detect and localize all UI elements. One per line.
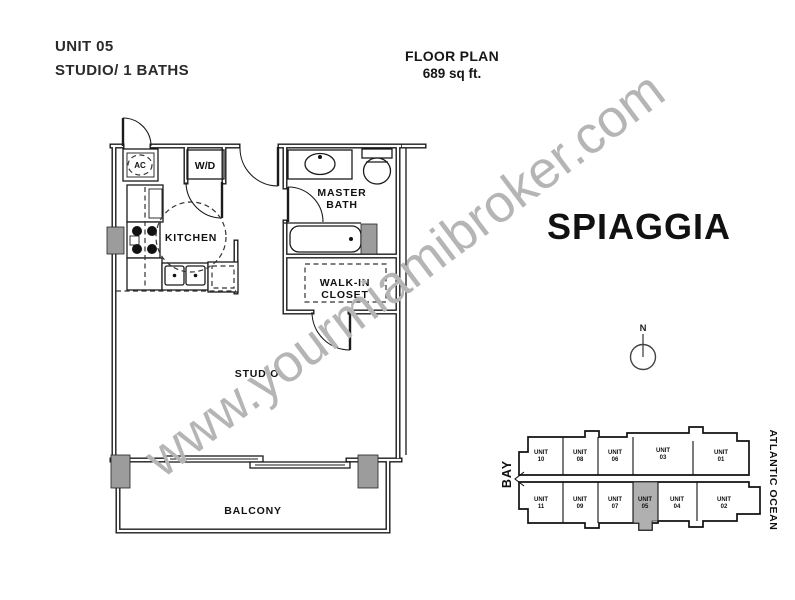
ac-label: AC [134,161,146,170]
keyplan-unit-01-word: UNIT [714,450,728,456]
ac-closet: AC [123,149,158,181]
keyplan-unit-07-word: UNIT [608,497,622,503]
keyplan-unit-03-num: 03 [660,455,667,461]
washer-dryer-closet: W/D [187,150,224,179]
room-label-balcony: BALCONY [224,505,282,517]
keyplan-unit-07-num: 07 [612,504,619,510]
north-arrow: N [631,323,656,370]
ac-closet-door-swing [123,118,151,146]
keyplan-unit-06-num: 06 [612,457,619,463]
keyplan-unit-01-num: 01 [718,457,725,463]
keyplan-unit-05-word: UNIT [638,497,652,503]
toilet-tank [362,149,392,158]
floor-plan-sheet: UNIT 05 STUDIO/ 1 BATHS FLOOR PLAN 689 s… [0,0,795,600]
keyplan-unit-11-word: UNIT [534,497,548,503]
atlantic-ocean-label: ATLANTIC OCEAN [767,430,779,531]
keyplan-unit-02-word: UNIT [717,497,731,503]
keyplan-unit-09-num: 09 [577,504,584,510]
entry-door-swing [240,148,278,186]
keyplan-unit-06-word: UNIT [608,450,622,456]
key-plan: UNIT 10 UNIT 08 UNIT 06 UNIT 03 UNIT 01 … [500,427,779,530]
wd-door-swing [186,182,222,218]
room-label-master-bath-2: BATH [326,199,358,211]
north-label: N [640,323,647,334]
room-label-kitchen: KITCHEN [165,232,217,244]
keyplan-unit-04-num: 04 [674,504,681,510]
keyplan-unit-08-word: UNIT [573,450,587,456]
keyplan-unit-09-word: UNIT [573,497,587,503]
wd-label: W/D [195,160,216,172]
keyplan-unit-04-word: UNIT [670,497,684,503]
keyplan-unit-10-word: UNIT [534,450,548,456]
bay-label: BAY [500,460,514,488]
keyplan-unit-10-num: 10 [538,457,545,463]
keyplan-unit-08-num: 08 [577,457,584,463]
keyplan-unit-05-num: 05 [642,504,649,510]
keyplan-unit-02-num: 02 [721,504,728,510]
keyplan-unit-11-num: 11 [538,504,545,510]
room-label-master-bath-1: MASTER [317,187,366,199]
keyplan-unit-03-word: UNIT [656,448,670,454]
